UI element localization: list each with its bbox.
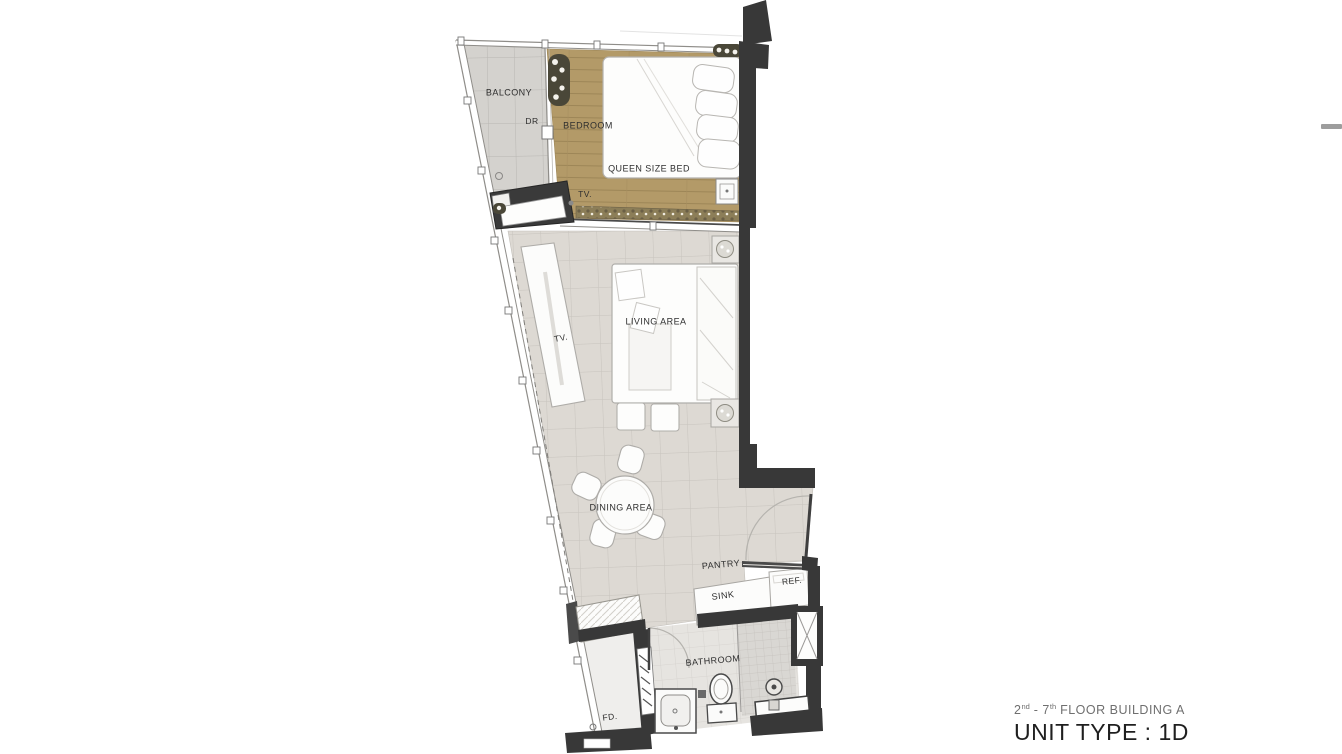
tv-bedroom-label: TV.: [578, 190, 592, 199]
corner-wedge-wall: [743, 0, 772, 45]
title-block: 2nd - 7th FLOOR BUILDING A UNIT TYPE : 1…: [1014, 702, 1189, 746]
floorplan-page: BALCONY DR BEDROOM QUEEN SIZE BED TV. TV…: [0, 0, 1342, 754]
bedroom-label: BEDROOM: [563, 122, 613, 131]
side-table-top: [712, 236, 739, 263]
side-table-bottom: [711, 399, 739, 427]
unit-type-title: UNIT TYPE : 1D: [1014, 719, 1189, 746]
bedside-table: [716, 179, 738, 204]
balcony-floor: [459, 45, 549, 210]
bottom-vent: [584, 739, 610, 748]
service-shaft: [797, 612, 817, 659]
refrigerator: [769, 568, 809, 609]
floor-building-line: 2nd - 7th FLOOR BUILDING A: [1014, 702, 1189, 717]
dr-door: [542, 126, 553, 139]
ref-label: REF.: [781, 576, 802, 587]
fd-label: FD.: [602, 712, 618, 723]
floor-sup-1: nd: [1021, 702, 1029, 711]
queen-bed: [603, 57, 741, 178]
dining-area-label: DINING AREA: [590, 504, 653, 513]
sofa: [612, 264, 738, 403]
living-area-label: LIVING AREA: [626, 318, 687, 327]
queen-bed-label: QUEEN SIZE BED: [608, 165, 690, 174]
balcony-label: BALCONY: [486, 89, 532, 98]
floorplan-drawing: [0, 0, 1342, 754]
dr-label: DR: [525, 117, 538, 126]
edge-mark: [1321, 124, 1342, 129]
